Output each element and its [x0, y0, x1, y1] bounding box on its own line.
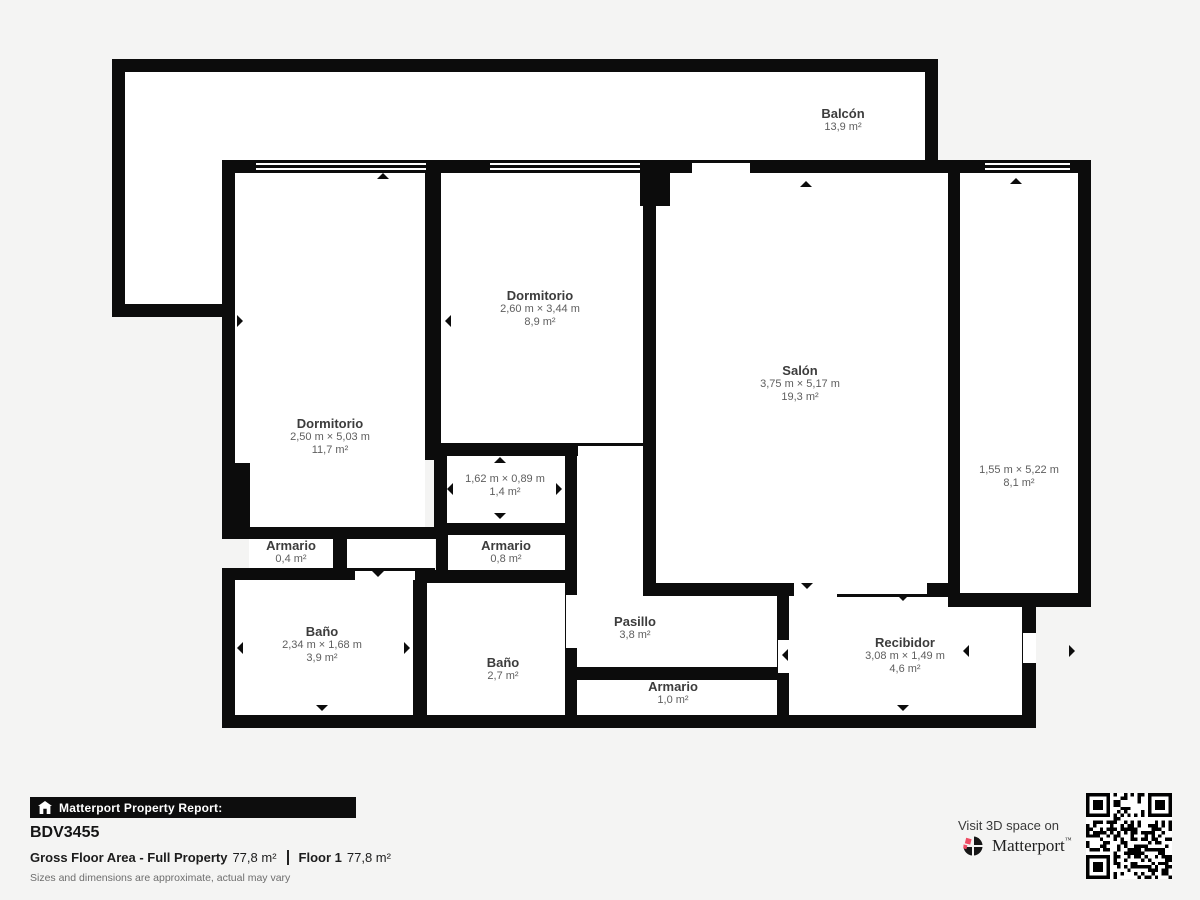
matterport-logo-icon — [962, 835, 984, 857]
room-name: Recibidor — [865, 635, 945, 650]
door-arrow-icon — [316, 705, 328, 711]
wall-segment — [1078, 160, 1091, 607]
door-arrow-icon — [556, 483, 562, 495]
door-arrow-icon — [377, 173, 389, 179]
door-arrow-icon — [404, 642, 410, 654]
window-marker — [490, 160, 640, 173]
door-arrow-icon — [897, 595, 909, 601]
room-floor — [576, 594, 778, 668]
room-floor — [234, 172, 425, 529]
threshold-line — [837, 594, 927, 597]
floor-value: 77,8 m² — [347, 850, 391, 865]
room-dims: 2,60 m × 3,44 m — [500, 303, 580, 316]
door-arrow-icon — [237, 642, 243, 654]
room-floor — [426, 582, 566, 716]
room-area: 1,0 m² — [648, 694, 698, 707]
room-name: Balcón — [821, 106, 864, 121]
wall-segment — [640, 160, 670, 206]
room-area: 0,8 m² — [481, 553, 531, 566]
room-area: 4,6 m² — [865, 663, 945, 676]
room-name: Baño — [487, 655, 520, 670]
room-name: Dormitorio — [290, 416, 370, 431]
room-name: Salón — [760, 363, 840, 378]
wall-segment — [565, 443, 577, 728]
room-area: 11,7 m² — [290, 444, 370, 457]
room-label-armario-left: Armario 0,4 m² — [266, 538, 316, 566]
disclaimer-text: Sizes and dimensions are approximate, ac… — [30, 872, 290, 884]
wall-segment — [222, 160, 235, 476]
door-arrow-icon — [1010, 178, 1022, 184]
room-area: 13,9 m² — [821, 121, 864, 134]
door-arrow-icon — [897, 705, 909, 711]
room-floor — [124, 71, 223, 305]
report-title-bar: Matterport Property Report: — [30, 797, 356, 818]
window-marker — [256, 160, 426, 173]
wall-segment — [565, 715, 778, 728]
threshold-line — [578, 443, 643, 446]
room-label-recibidor: Recibidor 3,08 m × 1,49 m 4,6 m² — [865, 635, 945, 676]
floor-label: Floor 1 — [299, 850, 342, 865]
door-arrow-icon — [782, 649, 788, 661]
room-name: Pasillo — [614, 614, 656, 629]
room-name: Armario — [481, 538, 531, 553]
room-label-armario-mid: Armario 0,8 m² — [481, 538, 531, 566]
door-opening — [566, 595, 577, 648]
matterport-wordmark: Matterport™ — [992, 836, 1072, 856]
room-area: 0,4 m² — [266, 553, 316, 566]
wall-segment — [436, 523, 577, 535]
room-label-dormitorio-mid: Dormitorio 2,60 m × 3,44 m 8,9 m² — [500, 288, 580, 329]
matterport-house-icon — [38, 801, 52, 814]
room-area: 1,4 m² — [465, 486, 545, 499]
room-label-salon: Salón 3,75 m × 5,17 m 19,3 m² — [760, 363, 840, 404]
wall-segment — [643, 583, 794, 596]
gross-area-label: Gross Floor Area - Full Property — [30, 850, 227, 865]
threshold-line — [692, 160, 750, 163]
wall-segment — [925, 59, 938, 163]
room-label-bano-mid: Baño 2,7 m² — [487, 655, 520, 683]
room-floor — [124, 71, 926, 161]
room-dims: 3,75 m × 5,17 m — [760, 378, 840, 391]
room-area: 8,1 m² — [979, 477, 1059, 490]
door-opening — [1023, 633, 1036, 663]
wall-segment — [112, 304, 234, 317]
room-area: 8,9 m² — [500, 316, 580, 329]
wall-segment — [222, 568, 235, 728]
gross-area-value: 77,8 m² — [232, 850, 276, 865]
qr-code — [1086, 793, 1172, 879]
property-report-page: Balcón 13,9 m² Dormitorio 2,60 m × 3,44 … — [0, 0, 1200, 900]
floor-area-line: Gross Floor Area - Full Property 77,8 m²… — [30, 850, 391, 865]
room-area: 3,8 m² — [614, 629, 656, 642]
room-dims: 1,62 m × 0,89 m — [465, 473, 545, 486]
door-arrow-icon — [1069, 645, 1075, 657]
wall-segment — [434, 443, 447, 535]
divider — [287, 850, 289, 865]
door-arrow-icon — [237, 315, 243, 327]
wall-segment — [222, 715, 436, 728]
wall-segment — [222, 568, 355, 580]
window-marker — [985, 160, 1070, 173]
door-arrow-icon — [963, 645, 969, 657]
wall-segment — [112, 59, 938, 72]
door-arrow-icon — [801, 583, 813, 589]
wall-segment — [777, 715, 1036, 728]
room-label-armario-bottom: Armario 1,0 m² — [648, 679, 698, 707]
report-footer: Matterport Property Report: BDV3455 Gros… — [0, 780, 1200, 900]
floor-plan: Balcón 13,9 m² Dormitorio 2,60 m × 3,44 … — [0, 0, 1200, 780]
wall-segment — [643, 160, 656, 596]
door-arrow-icon — [445, 315, 451, 327]
wall-segment — [948, 160, 960, 600]
room-label-bano-left: Baño 2,34 m × 1,68 m 3,9 m² — [282, 624, 362, 665]
door-arrow-icon — [372, 571, 384, 577]
threshold-line — [355, 568, 415, 571]
room-area: 19,3 m² — [760, 391, 840, 404]
room-label-closet: 1,62 m × 0,89 m 1,4 m² — [465, 473, 545, 499]
door-arrow-icon — [494, 513, 506, 519]
wall-segment — [413, 578, 427, 728]
visit-3d-label: Visit 3D space on — [958, 818, 1059, 833]
report-title: Matterport Property Report: — [59, 801, 222, 815]
wall-segment — [948, 593, 1091, 607]
door-arrow-icon — [447, 483, 453, 495]
room-label-dormitorio-left: Dormitorio 2,50 m × 5,03 m 11,7 m² — [290, 416, 370, 457]
room-area: 3,9 m² — [282, 652, 362, 665]
door-arrow-icon — [494, 457, 506, 463]
wall-segment — [425, 160, 441, 460]
room-name: Dormitorio — [500, 288, 580, 303]
door-arrow-icon — [800, 181, 812, 187]
room-name: Baño — [282, 624, 362, 639]
room-floor — [345, 536, 435, 569]
room-dims: 2,50 m × 5,03 m — [290, 431, 370, 444]
room-name: Armario — [266, 538, 316, 553]
room-label-room-right: 1,55 m × 5,22 m 8,1 m² — [979, 464, 1059, 490]
room-label-pasillo: Pasillo 3,8 m² — [614, 614, 656, 642]
room-dims: 1,55 m × 5,22 m — [979, 464, 1059, 477]
room-name: Armario — [648, 679, 698, 694]
room-label-balcon: Balcón 13,9 m² — [821, 106, 864, 134]
wall-segment — [112, 59, 125, 317]
wall-segment — [315, 527, 437, 539]
property-id: BDV3455 — [30, 824, 99, 842]
matterport-brand: Matterport™ — [962, 835, 1072, 857]
room-floor — [960, 172, 1079, 594]
wall-segment — [427, 570, 577, 583]
room-dims: 2,34 m × 1,68 m — [282, 639, 362, 652]
wall-segment — [427, 715, 577, 728]
room-dims: 3,08 m × 1,49 m — [865, 650, 945, 663]
wall-segment — [436, 443, 578, 456]
room-area: 2,7 m² — [487, 670, 520, 683]
